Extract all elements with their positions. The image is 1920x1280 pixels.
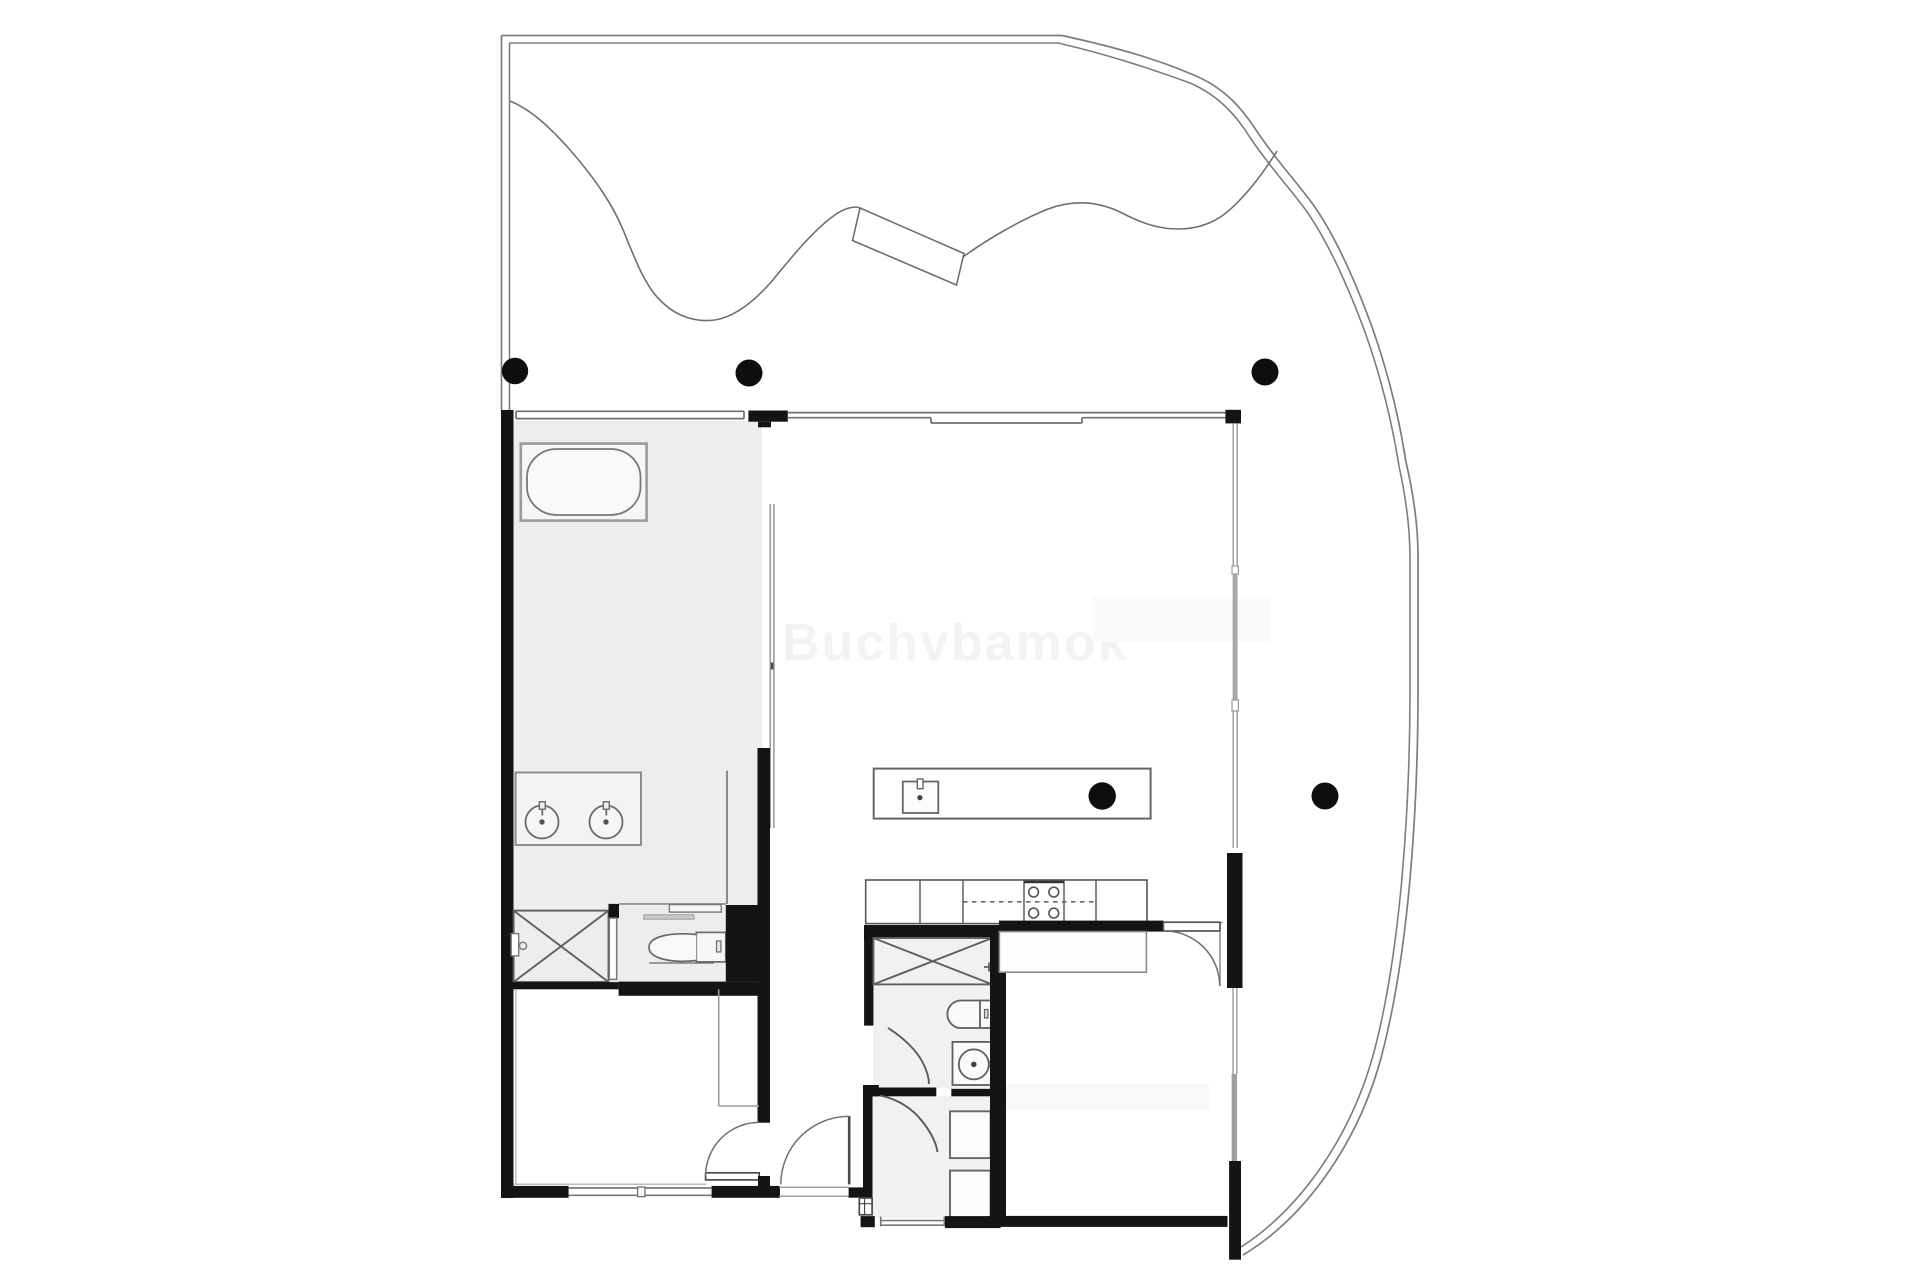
svg-text:Buchvbamok: Buchvbamok xyxy=(782,614,1129,672)
